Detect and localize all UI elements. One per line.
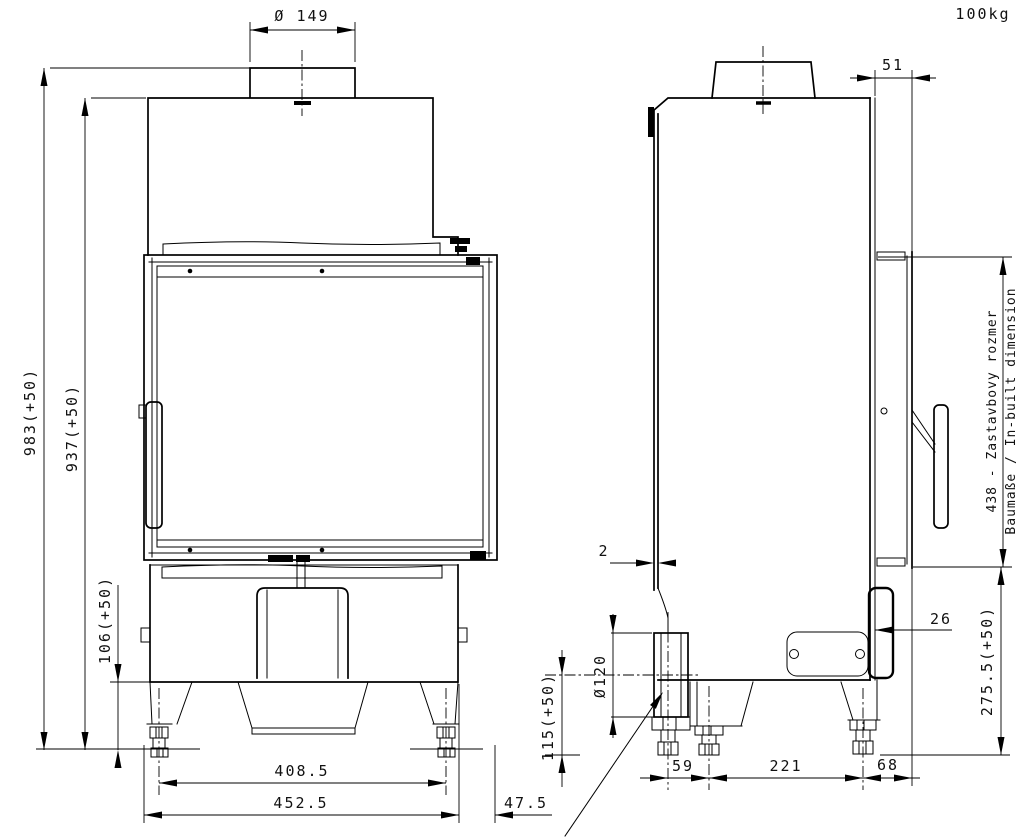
front-flue-collar (250, 50, 355, 116)
dim-bracket-depth: 26 (875, 610, 952, 634)
dim-rear-foot-offset-label: 68 (877, 756, 899, 774)
side-dimensions: 51 2 Ø120 (539, 56, 1019, 787)
front-funnel (233, 682, 373, 734)
side-bracket (869, 588, 893, 678)
dim-front-foot-offset-label: 59 (672, 757, 694, 775)
dim-flue-diameter-label: Ø 149 (274, 7, 329, 25)
dim-lower-zone: 275.5(+50) (880, 567, 1012, 755)
dim-inbuilt-value-label: 438 - Zastavbovy rozmer (985, 309, 1000, 512)
air-intake-connector (652, 588, 690, 755)
air-intake-leader (565, 690, 666, 836)
side-door (877, 252, 948, 568)
front-top-shelf (163, 242, 440, 255)
door-screw (188, 269, 193, 274)
door-latch (268, 555, 310, 562)
door-screw (188, 548, 193, 553)
side-plate (787, 632, 868, 676)
front-hood (148, 98, 470, 255)
side-door-handle (912, 405, 948, 528)
dim-flue-diameter: Ø 149 (250, 7, 355, 62)
front-dimensions: Ø 149 983(+50) 937(+50) (21, 7, 552, 823)
door-screw (320, 548, 325, 553)
dim-rear-wall-label: 2 (598, 542, 609, 560)
dim-flue-offset-label: 51 (882, 56, 904, 74)
dim-body-width-label: 452.5 (273, 794, 328, 812)
door-handle (139, 402, 162, 528)
dim-body-width: 452.5 (144, 684, 459, 823)
door-hinge-bottom (470, 551, 486, 560)
dim-lower-zone-label: 275.5(+50) (978, 606, 996, 716)
dim-door-overhang-label: 47.5 (504, 794, 548, 812)
door-screw (320, 269, 325, 274)
dim-rear-wall: 2 (598, 542, 676, 567)
dim-plinth-height: 106(+50) (96, 576, 150, 768)
weight-label: 100kg (955, 5, 1010, 23)
side-body (648, 98, 887, 680)
dim-total-height: 983(+50) (21, 68, 250, 750)
dim-intake-diameter-label: Ø120 (591, 654, 609, 698)
plinth-side-nub (458, 628, 467, 642)
dim-feet-spacing-label: 408.5 (274, 762, 329, 780)
side-view: 51 2 Ø120 (539, 46, 1019, 790)
dim-total-height-label: 983(+50) (21, 368, 39, 456)
drawing-sheet: Ø 149 983(+50) 937(+50) (0, 0, 1033, 837)
dim-intake-diameter: Ø120 (591, 614, 652, 738)
dim-bracket-depth-label: 26 (930, 610, 952, 628)
dim-body-height-label: 937(+50) (63, 384, 81, 472)
side-feet (545, 612, 880, 790)
dim-side-feet-spacing-label: 221 (769, 757, 802, 775)
front-door (139, 255, 497, 562)
rear-mount-tab (648, 107, 654, 137)
technical-drawing: Ø 149 983(+50) 937(+50) (0, 0, 1033, 837)
plinth-side-nub (141, 628, 150, 642)
dim-flue-offset: 51 (850, 56, 936, 252)
dim-feet-spacing: 408.5 (159, 762, 446, 787)
front-plinth (141, 562, 467, 734)
side-hole (881, 408, 887, 414)
dim-plinth-height-label: 106(+50) (96, 576, 114, 664)
dim-intake-axis-height: 115(+50) (539, 650, 580, 787)
front-view: Ø 149 983(+50) 937(+50) (21, 7, 552, 823)
door-hinge-top (466, 257, 480, 265)
side-flue-collar (712, 46, 815, 114)
dim-intake-axis-height-label: 115(+50) (539, 673, 557, 761)
dim-inbuilt-text-label: Baumaße / In-built dimension (1004, 287, 1019, 534)
front-pedestal (257, 562, 348, 678)
